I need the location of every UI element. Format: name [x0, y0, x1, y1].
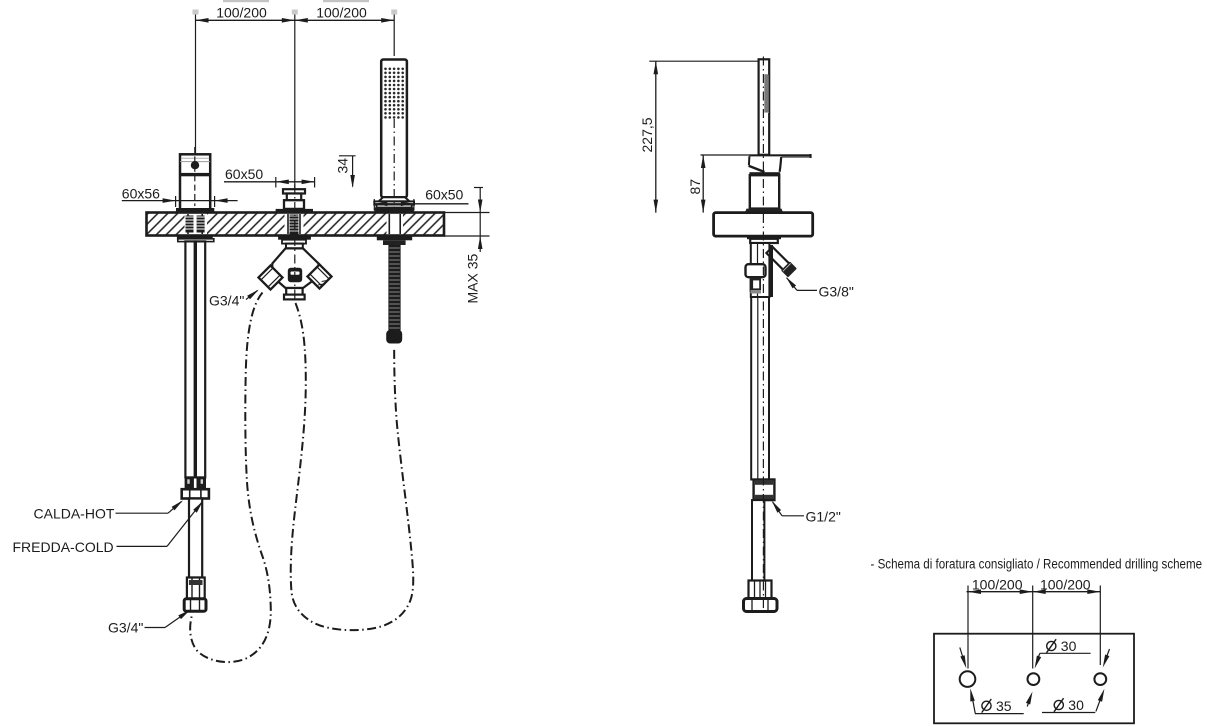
svg-text:227,5: 227,5 — [639, 117, 655, 152]
svg-text:30: 30 — [1068, 697, 1084, 713]
svg-text:100/200: 100/200 — [216, 5, 267, 21]
svg-text:30: 30 — [1061, 638, 1077, 654]
svg-text:60x56: 60x56 — [122, 185, 160, 201]
svg-text:100/200: 100/200 — [316, 5, 367, 21]
svg-text:60x50: 60x50 — [225, 166, 263, 182]
svg-text:G3/8": G3/8" — [819, 283, 854, 299]
svg-text:G3/4": G3/4" — [108, 620, 143, 636]
svg-text:MAX 35: MAX 35 — [465, 253, 481, 303]
svg-text:FREDDA-COLD: FREDDA-COLD — [13, 539, 114, 555]
svg-text:87: 87 — [687, 179, 703, 195]
svg-text:60x50: 60x50 — [425, 186, 463, 202]
svg-text:CALDA-HOT: CALDA-HOT — [34, 505, 115, 521]
svg-text:100/200: 100/200 — [1040, 576, 1091, 592]
svg-text:34: 34 — [335, 158, 351, 174]
svg-text:35: 35 — [996, 698, 1012, 714]
svg-text:G1/2": G1/2" — [806, 508, 841, 524]
svg-text:- Schema di foratura consiglia: - Schema di foratura consigliato / Recom… — [871, 556, 1203, 572]
svg-text:G3/4": G3/4" — [209, 292, 244, 308]
